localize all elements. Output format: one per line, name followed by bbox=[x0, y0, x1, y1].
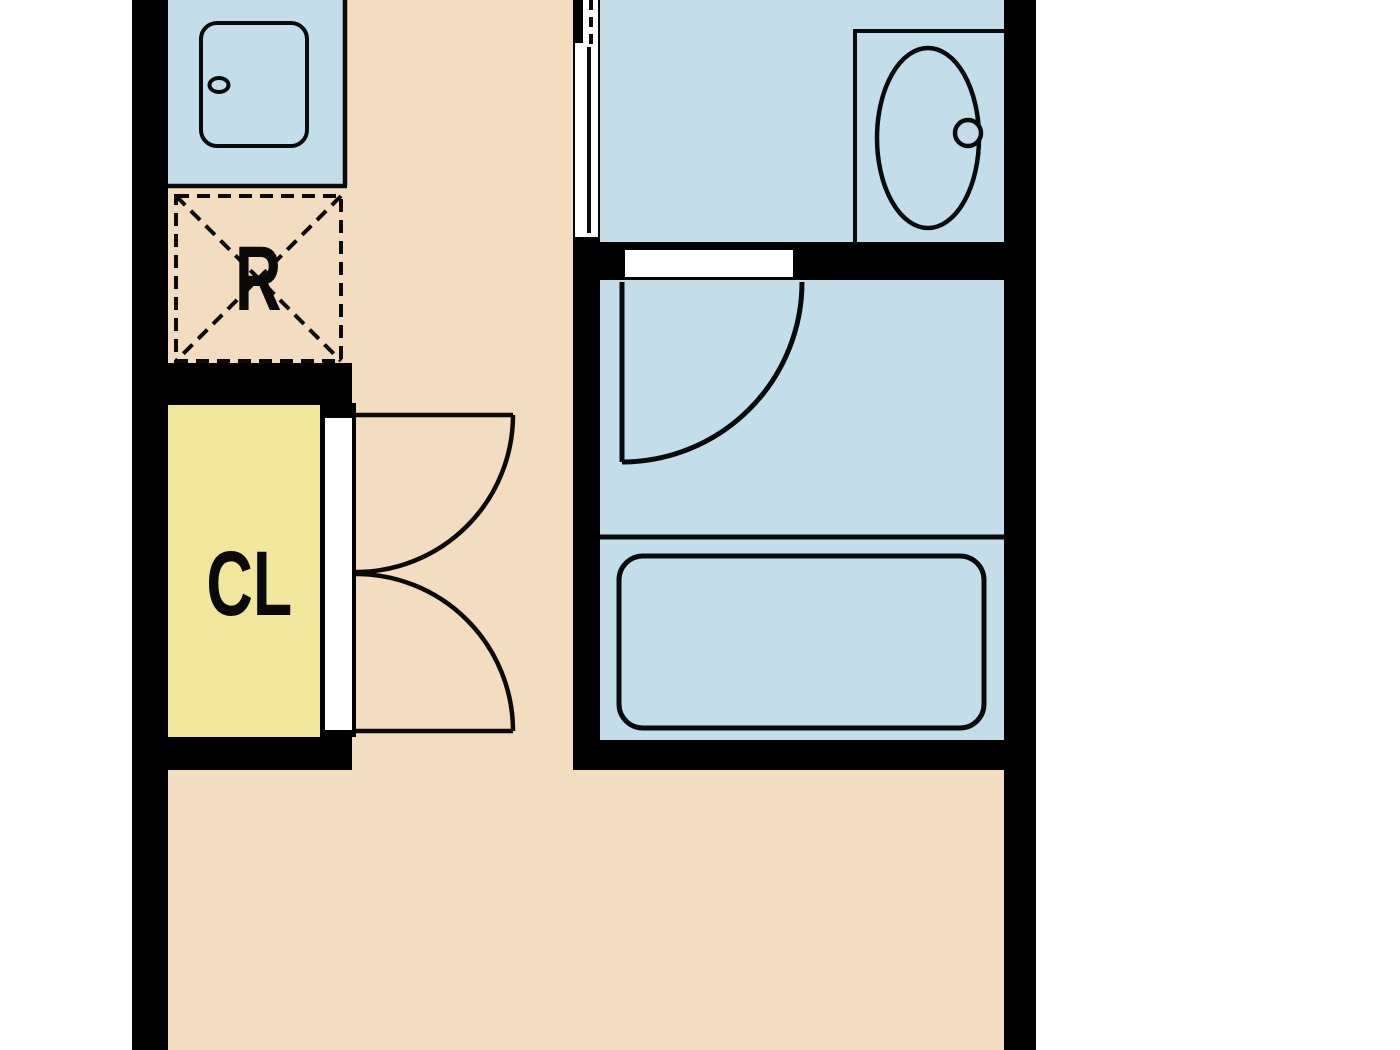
closet-label: CL bbox=[173, 418, 325, 750]
sliding-door-panel bbox=[575, 43, 598, 237]
bathroom bbox=[600, 280, 1004, 740]
wall-bathroom-bottom bbox=[573, 740, 1004, 770]
toilet-room bbox=[600, 0, 1004, 242]
kitchen-counter-area bbox=[168, 0, 347, 188]
refrigerator-label: R bbox=[176, 196, 341, 361]
floorplan-canvas: R CL bbox=[0, 0, 1400, 1050]
sliding-door-gap bbox=[583, 0, 598, 46]
bathroom-door-opening bbox=[625, 250, 793, 277]
closet-door-panel bbox=[325, 418, 352, 730]
wall-below-refrigerator bbox=[132, 363, 352, 405]
